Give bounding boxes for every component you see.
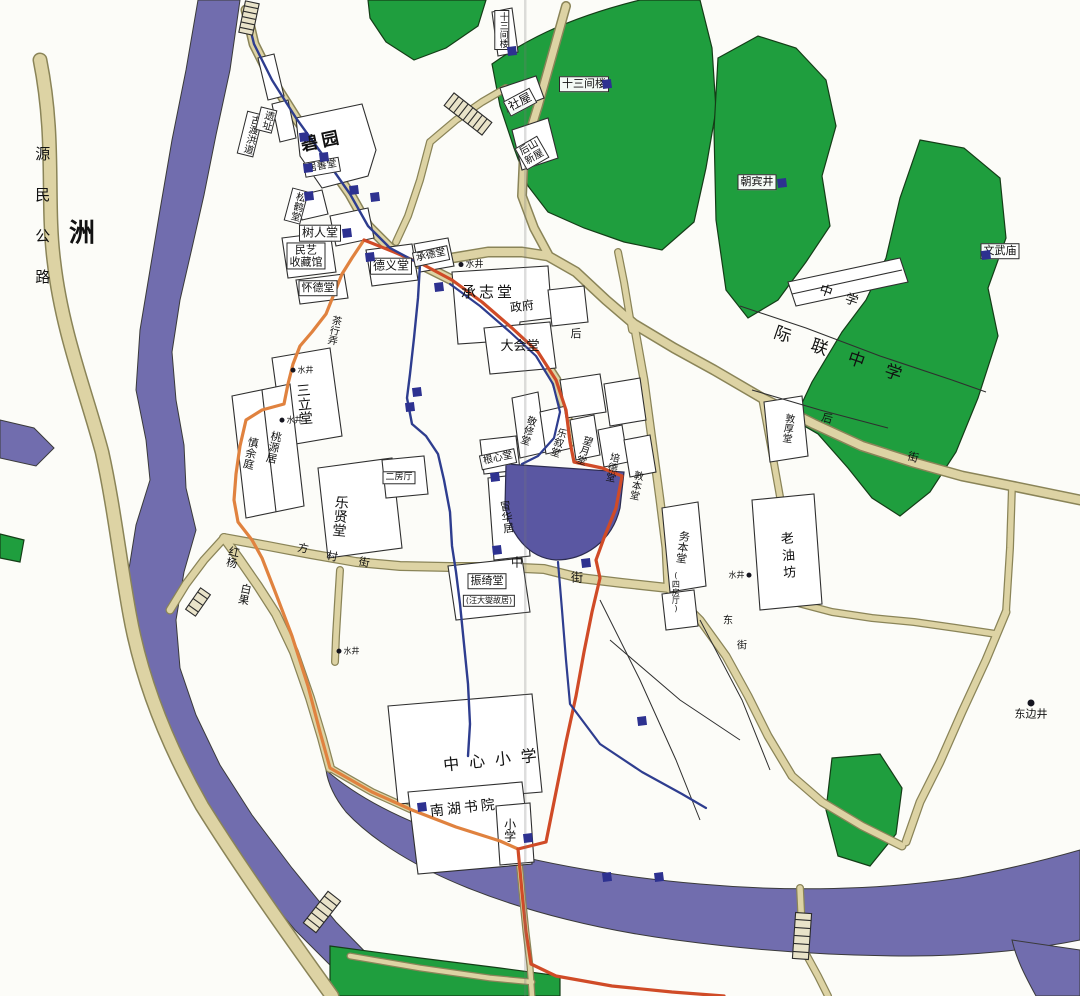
fold-line	[524, 0, 527, 996]
village-map: 源民公路洲古渡洪道遗址碧园十三间楼社屋十三间楼后山 新屋朝宾井文武庙中学际联中学…	[0, 0, 1080, 996]
map-canvas	[0, 0, 1080, 996]
lake-southeast-corner	[1012, 940, 1080, 996]
green-top-left	[368, 0, 486, 60]
bridge-west	[186, 588, 211, 616]
bridge-southeast	[792, 912, 811, 959]
left-stream	[0, 420, 54, 466]
green-west-patch	[0, 534, 24, 562]
